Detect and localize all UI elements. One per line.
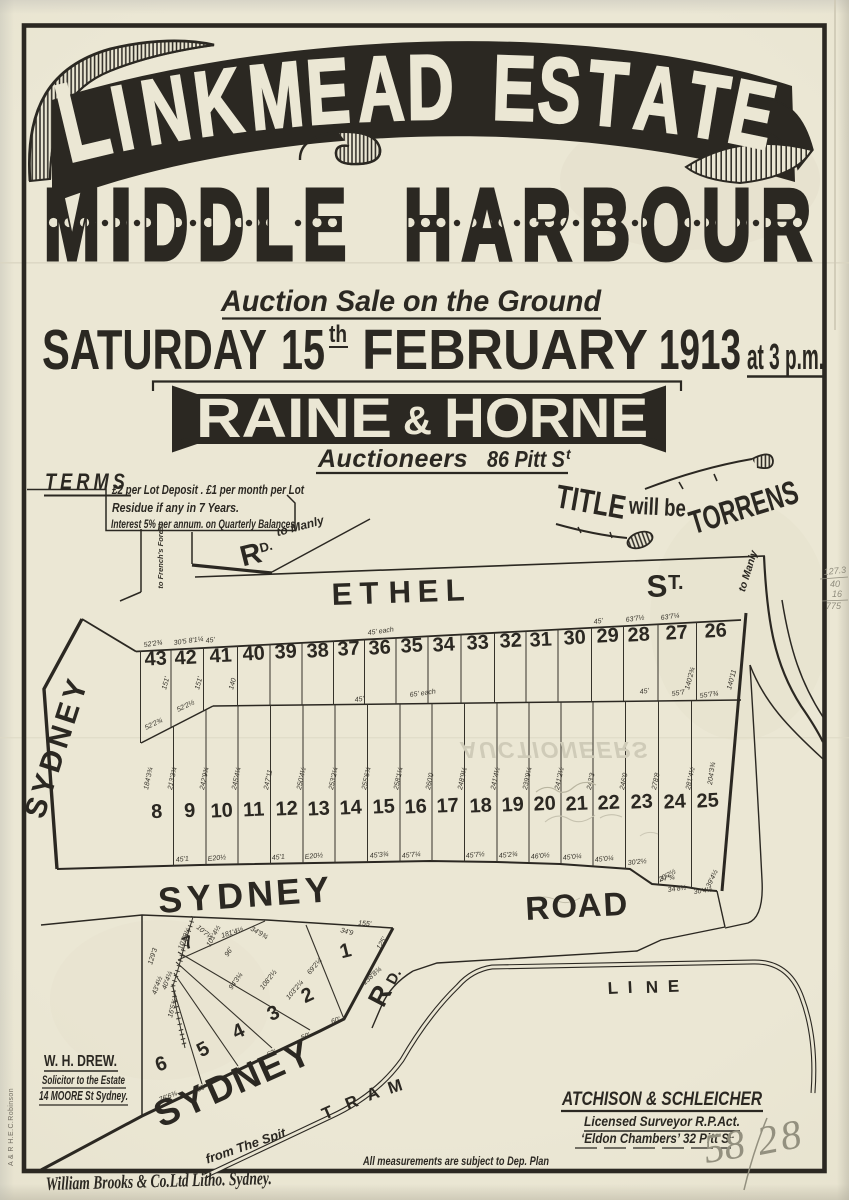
svg-text:E: E (275, 870, 302, 913)
svg-text:45'0¼: 45'0¼ (594, 855, 614, 864)
svg-text:Y: Y (186, 876, 213, 919)
svg-text:69'2¼: 69'2¼ (306, 957, 324, 976)
svg-text:M: M (385, 1075, 404, 1097)
svg-text:86 Pitt S: 86 Pitt S (487, 446, 566, 472)
svg-text:D: D (407, 35, 455, 139)
svg-text:60': 60' (330, 1016, 342, 1026)
svg-text:38: 38 (306, 639, 329, 662)
svg-text:242'9¾: 242'9¾ (199, 767, 211, 792)
svg-text:E: E (303, 169, 346, 281)
svg-text:36: 36 (368, 636, 391, 659)
svg-text:52'2½: 52'2½ (175, 698, 196, 714)
svg-text:258'1¼: 258'1¼ (393, 767, 405, 792)
svg-text:246'0: 246'0 (619, 772, 630, 791)
svg-text:45' each: 45' each (367, 626, 394, 637)
svg-text:S: S (646, 568, 668, 604)
svg-text:775: 775 (826, 601, 842, 611)
svg-text:at 3 p.m.: at 3 p.m. (747, 336, 824, 377)
svg-text:D.: D. (383, 966, 405, 987)
svg-text:to French's Forest: to French's Forest (156, 523, 165, 589)
svg-text:58: 58 (700, 1120, 748, 1172)
svg-text:1: 1 (337, 939, 353, 963)
svg-text:&: & (403, 399, 432, 443)
svg-text:Residue if any in 7 Years.: Residue if any in 7 Years. (112, 500, 239, 515)
svg-text:25: 25 (696, 789, 719, 812)
svg-text:140: 140 (228, 677, 238, 690)
svg-text:32: 32 (499, 629, 522, 652)
svg-text:45'1: 45'1 (271, 854, 285, 862)
svg-text:151': 151' (194, 675, 204, 690)
svg-text:30'2½: 30'2½ (627, 857, 647, 867)
svg-text:8: 8 (151, 801, 163, 824)
svg-text:151': 151' (161, 675, 171, 690)
svg-text:I: I (627, 978, 633, 997)
svg-text:B: B (581, 169, 630, 281)
svg-text:63'7½: 63'7½ (625, 613, 645, 624)
svg-text:U: U (702, 169, 751, 281)
svg-text:28: 28 (753, 1110, 808, 1164)
svg-text:16: 16 (404, 795, 427, 818)
svg-text:26: 26 (704, 619, 727, 642)
svg-text:M: M (244, 42, 307, 150)
svg-text:15: 15 (372, 795, 395, 818)
svg-text:E: E (331, 576, 353, 612)
svg-text:23: 23 (630, 790, 653, 813)
svg-text:127.3: 127.3 (823, 565, 846, 577)
svg-text:52'2¾: 52'2¾ (144, 717, 164, 732)
svg-text:24: 24 (663, 790, 687, 813)
svg-text:S: S (535, 37, 584, 142)
svg-text:R: R (524, 889, 550, 927)
svg-text:ATCHISON & SCHLEICHER: ATCHISON & SCHLEICHER (561, 1088, 762, 1110)
svg-text:239'9¼: 239'9¼ (522, 767, 534, 792)
svg-text:T.: T. (668, 572, 684, 594)
svg-text:65' each: 65' each (409, 688, 436, 699)
svg-text:15: 15 (281, 318, 325, 382)
svg-text:22: 22 (597, 791, 620, 814)
svg-text:R: R (761, 169, 811, 281)
svg-text:A: A (462, 169, 512, 281)
svg-text:E: E (491, 36, 537, 140)
svg-text:All measurements are subjec: All measurements are subject to Dep. Pla… (362, 1154, 549, 1168)
svg-text:Auctioneers: Auctioneers (317, 445, 468, 473)
svg-text:E: E (667, 977, 679, 996)
svg-text:W. H. DREW.: W. H. DREW. (44, 1053, 117, 1070)
svg-text:FEBRUARY: FEBRUARY (362, 318, 648, 382)
svg-text:184'3¾: 184'3¾ (143, 767, 155, 791)
svg-text:12: 12 (275, 797, 298, 820)
svg-text:9: 9 (184, 800, 196, 823)
svg-text:250'4½: 250'4½ (295, 766, 308, 791)
svg-text:N: N (645, 978, 658, 997)
svg-text:33: 33 (466, 631, 489, 654)
svg-text:34: 34 (432, 633, 456, 656)
svg-text:from The Spit: from The Spit (203, 1125, 288, 1167)
svg-text:21: 21 (565, 792, 588, 815)
svg-text:1913: 1913 (659, 318, 741, 382)
svg-text:45': 45' (354, 696, 365, 704)
svg-text:Auction Sale on the Ground: Auction Sale on the Ground (220, 285, 602, 318)
svg-text:155': 155' (358, 920, 372, 928)
svg-text:A: A (576, 886, 602, 924)
svg-text:45': 45' (639, 688, 650, 696)
svg-text:245'4¼: 245'4¼ (231, 767, 243, 792)
svg-text:M: M (44, 169, 100, 281)
svg-text:D: D (198, 169, 244, 281)
svg-text:D: D (142, 169, 188, 281)
svg-text:45': 45' (593, 618, 604, 626)
svg-text:27: 27 (665, 621, 688, 644)
svg-text:45'7½: 45'7½ (465, 850, 485, 860)
svg-text:34'9: 34'9 (339, 927, 353, 937)
svg-text:10: 10 (210, 799, 233, 822)
svg-text:E20½: E20½ (207, 853, 226, 863)
svg-text:43: 43 (144, 647, 167, 670)
svg-text:243'3: 243'3 (586, 772, 597, 791)
svg-text:17: 17 (436, 794, 459, 817)
svg-text:Y: Y (304, 868, 331, 911)
svg-text:O: O (550, 887, 578, 925)
svg-text:H: H (388, 574, 412, 610)
svg-text:204'3¾: 204'3¾ (707, 762, 717, 787)
svg-text:13: 13 (307, 797, 330, 820)
svg-text:I: I (110, 169, 132, 281)
svg-text:213'3¾: 213'3¾ (167, 767, 179, 792)
svg-text:260'0: 260'0 (425, 772, 436, 791)
svg-text:30: 30 (563, 626, 586, 649)
svg-text:19: 19 (501, 793, 524, 816)
svg-text:O: O (640, 169, 692, 281)
svg-text:29: 29 (596, 624, 619, 647)
svg-text:Interest 5% per annum. on Qua: Interest 5% per annum. on Quarterly Bala… (111, 517, 295, 531)
svg-text:HORNE: HORNE (444, 386, 648, 449)
svg-text:20: 20 (533, 792, 556, 815)
svg-text:39'4½: 39'4½ (705, 868, 720, 889)
svg-text:40: 40 (242, 642, 265, 665)
svg-text:28: 28 (627, 623, 650, 646)
svg-text:D: D (602, 885, 628, 923)
svg-text:S: S (157, 878, 184, 921)
svg-text:40: 40 (830, 579, 840, 589)
svg-text:18: 18 (469, 794, 492, 817)
svg-text:SYDNEY: SYDNEY (19, 672, 96, 822)
svg-text:37: 37 (337, 637, 360, 660)
svg-text:45'1: 45'1 (175, 856, 189, 864)
svg-text:34'9¾: 34'9¾ (249, 926, 269, 942)
svg-text:will be: will be (627, 492, 686, 522)
svg-text:Solicitor to the Estate: Solicitor to the Estate (42, 1075, 125, 1087)
svg-text:45': 45' (205, 637, 216, 645)
svg-text:E: E (303, 38, 353, 144)
svg-text:AUCTIONEERS: AUCTIONEERS (459, 737, 649, 763)
svg-text:278'8: 278'8 (651, 772, 662, 791)
svg-text:45'3¾: 45'3¾ (369, 851, 389, 860)
svg-text:248'9½: 248'9½ (456, 766, 469, 791)
svg-text:46'0½: 46'0½ (530, 851, 550, 861)
svg-text:th: th (329, 321, 347, 348)
svg-text:41: 41 (209, 644, 232, 667)
svg-text:45'0¼: 45'0¼ (562, 853, 582, 862)
svg-text:11: 11 (243, 798, 265, 821)
svg-text:241'2½: 241'2½ (553, 766, 566, 791)
svg-text:255'6¾: 255'6¾ (361, 767, 373, 792)
svg-text:TITLE: TITLE (553, 477, 628, 526)
svg-text:T: T (359, 575, 379, 611)
svg-text:E20½: E20½ (304, 851, 323, 861)
svg-text:14 MOORE St Sydney.: 14 MOORE St Sydney. (39, 1089, 128, 1103)
svg-text:R: R (522, 169, 571, 281)
svg-text:L: L (254, 169, 293, 281)
svg-text:N: N (246, 872, 275, 915)
svg-text:45'2¾: 45'2¾ (498, 851, 518, 860)
svg-text:253'2¼: 253'2¼ (328, 767, 340, 792)
svg-text:45'7¼: 45'7¼ (401, 851, 421, 860)
svg-text:30'5 8'1¼: 30'5 8'1¼ (173, 636, 204, 647)
svg-text:L: L (607, 978, 618, 998)
svg-text:16: 16 (832, 589, 842, 599)
svg-text:RAINE: RAINE (196, 386, 392, 449)
svg-text:D.: D. (258, 538, 274, 556)
svg-text:D: D (216, 874, 245, 917)
svg-text:14: 14 (339, 796, 363, 819)
svg-text:42: 42 (174, 646, 197, 669)
svg-text:241'4½: 241'4½ (489, 766, 502, 791)
svg-text:181'4½: 181'4½ (220, 925, 244, 940)
svg-text:H: H (404, 169, 452, 281)
svg-text:31: 31 (529, 628, 552, 651)
svg-text:281'4½: 281'4½ (684, 766, 697, 791)
svg-text:A & R H.E.C.Robinson: A & R H.E.C.Robinson (8, 1088, 15, 1166)
svg-text:L: L (445, 572, 465, 608)
svg-text:E: E (417, 573, 439, 609)
svg-text:3: 3 (264, 1001, 283, 1026)
svg-text:35: 35 (400, 634, 423, 657)
svg-text:£2 per Lot Deposit . £1 per mo: £2 per Lot Deposit . £1 per month per Lo… (111, 482, 304, 497)
svg-text:SATURDAY: SATURDAY (42, 318, 267, 382)
svg-text:39: 39 (274, 640, 297, 663)
svg-text:A: A (356, 36, 406, 141)
svg-text:247'11: 247'11 (263, 769, 274, 791)
